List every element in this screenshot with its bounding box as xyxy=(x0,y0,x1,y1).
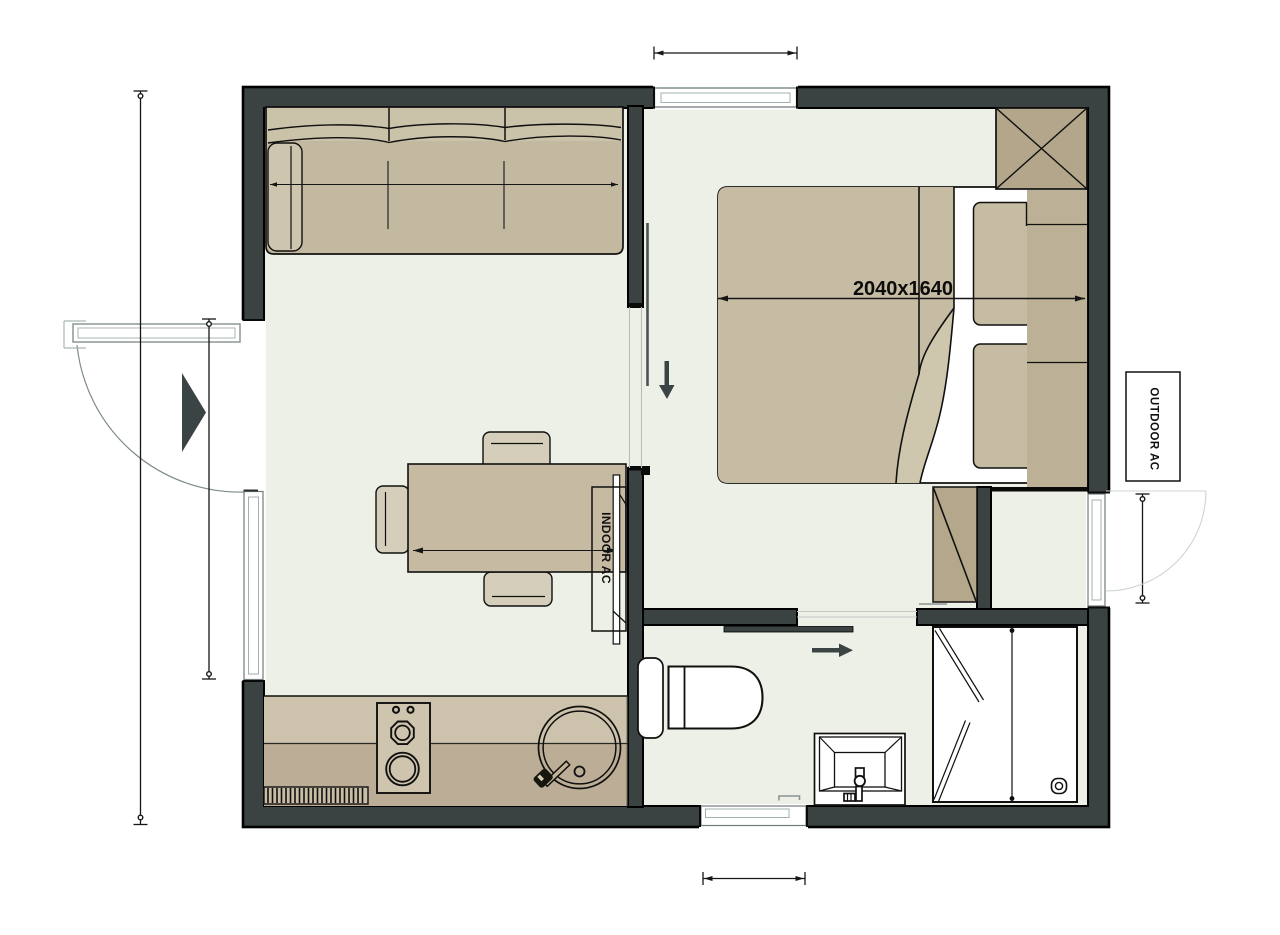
svg-text:OUTDOOR AC: OUTDOOR AC xyxy=(1148,387,1160,470)
svg-text:INDOOR AC: INDOOR AC xyxy=(599,512,613,584)
svg-text:2040x1640: 2040x1640 xyxy=(853,278,953,300)
